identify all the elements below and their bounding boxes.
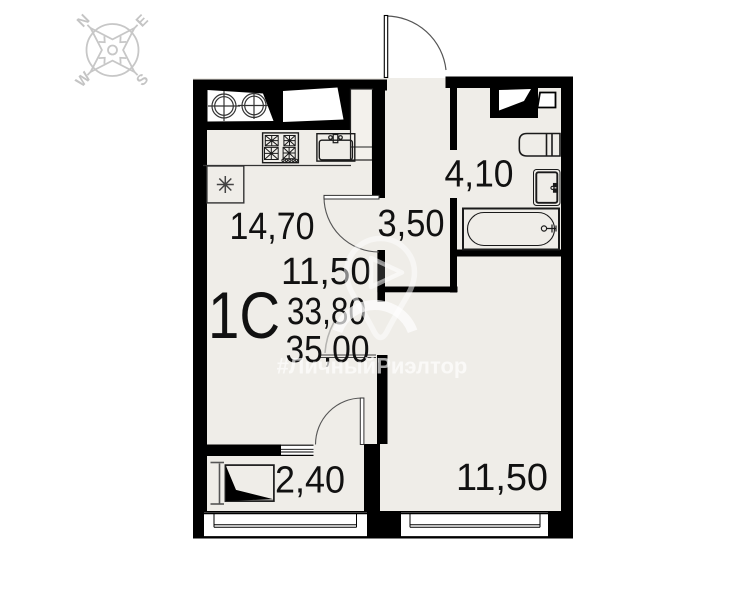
svg-text:4,10: 4,10 xyxy=(445,154,514,196)
svg-text:11,50: 11,50 xyxy=(456,457,548,499)
svg-text:1С: 1С xyxy=(208,278,280,352)
svg-text:14,70: 14,70 xyxy=(230,206,315,248)
svg-text:11,50: 11,50 xyxy=(281,251,371,293)
svg-text:#ЛичныйРиэлтор: #ЛичныйРиэлтор xyxy=(277,354,468,379)
svg-text:2,40: 2,40 xyxy=(275,460,345,502)
